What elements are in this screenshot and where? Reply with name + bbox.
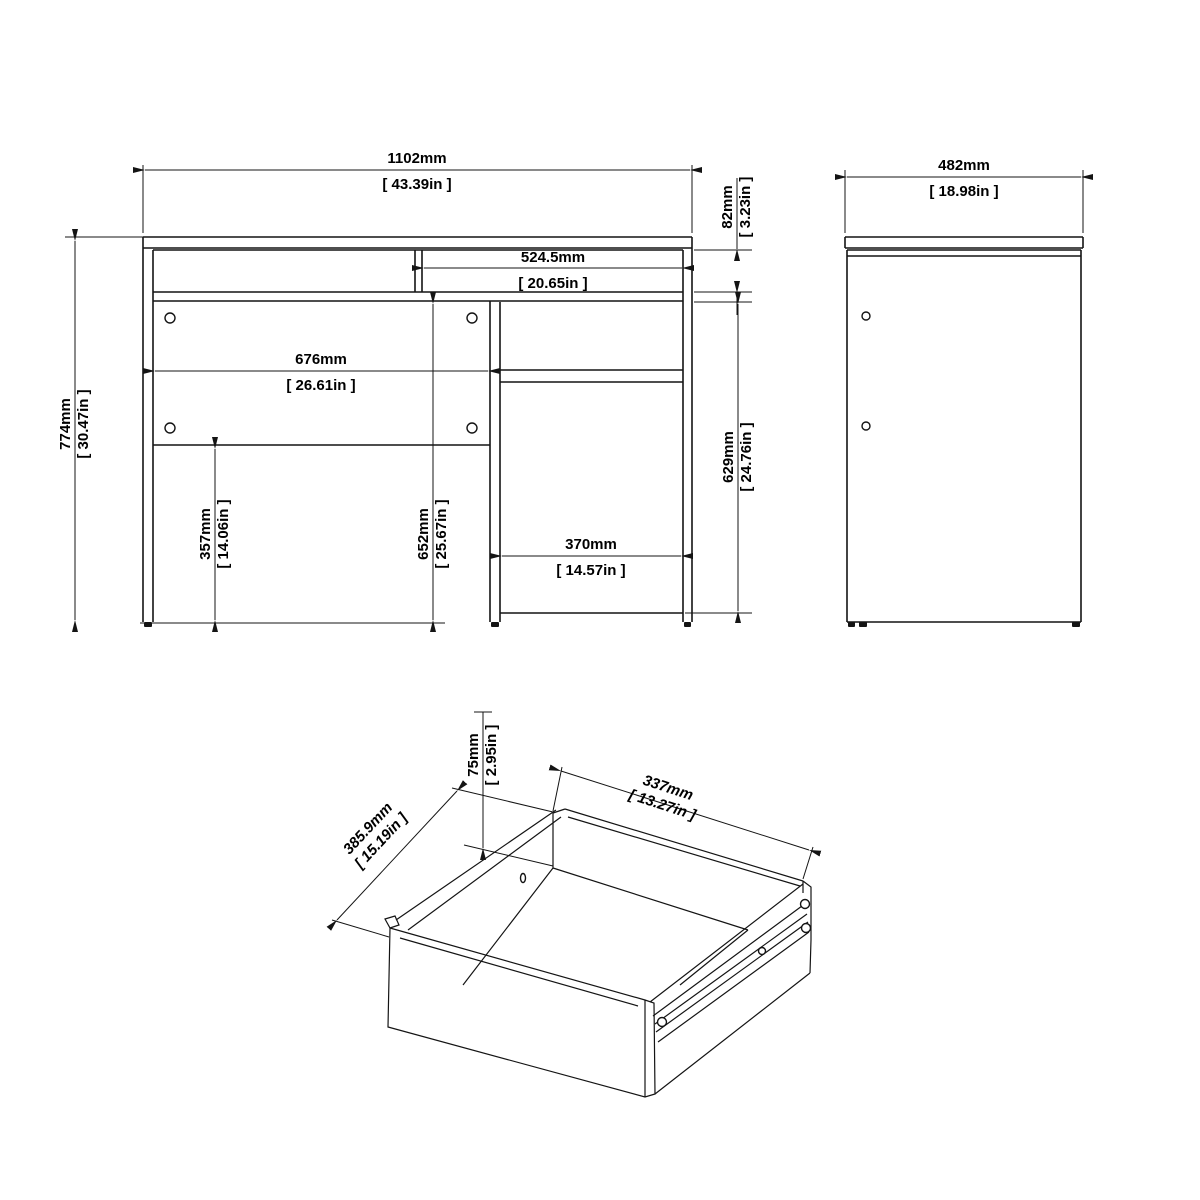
dim-leg-clearance-in: [ 14.06in ] [215,499,232,568]
dim-side-depth-mm: 482mm [938,157,990,174]
dim-overall-height-in: [ 30.47in ] [75,389,92,458]
screw-hole [862,312,870,320]
dim-overall-width-mm: 1102mm [387,150,446,167]
dim-drawer-depth: 385.9mm [ 15.19in ] [332,791,457,937]
dim-drawer-height-mm: 75mm [465,733,482,776]
drawer-front-panel-tab [385,916,399,928]
dim-door-width-mm: 370mm [565,536,617,553]
drawer-right-wall-rail [650,884,811,1094]
wall-hole [521,874,526,883]
screw-hole [862,422,870,430]
rail-hole [759,948,766,955]
dim-drawer-height: 75mm [ 2.95in ] [452,712,553,866]
dim-door-width: 370mm [ 14.57in ] [502,536,681,579]
rail-screw [801,900,810,909]
dim-cabinet-height: 629mm [ 24.76in ] [685,302,755,613]
dim-drawer-height-in: [ 2.95in ] [483,725,500,786]
dim-drawer-width: 337mm [ 13.27in ] [553,767,813,879]
dim-overall-height: 774mm [ 30.47in ] [57,241,92,620]
screw-hole [467,423,477,433]
dim-cabinet-height-mm: 629mm [720,431,737,483]
dim-back-panel-mm: 676mm [295,351,347,368]
dim-under-top-mm: 652mm [415,508,432,560]
drawer-left-wall [396,810,561,985]
side-view: 482mm [ 18.98in ] [845,157,1083,627]
dim-under-top-in: [ 25.67in ] [433,499,450,568]
foot [1072,622,1080,627]
dim-top-section: 82mm [ 3.23in ] [694,177,754,315]
furniture-assembly-diagram: 1102mm [ 43.39in ] 524.5mm [ 20.65in ] 8… [0,0,1200,1200]
rail-screw [802,924,811,933]
screw-hole [165,313,175,323]
drawer-back-wall [553,809,811,940]
ground-line [65,237,445,623]
foot [848,622,855,627]
dim-cabinet-height-in: [ 24.76in ] [738,422,755,491]
dim-top-section-mm: 82mm [719,185,736,228]
dim-under-top: 652mm [ 25.67in ] [415,304,450,620]
dim-shelf-opening-in: [ 20.65in ] [518,275,587,292]
drawer-front-panel [388,928,655,1097]
dim-leg-clearance: 357mm [ 14.06in ] [197,449,232,620]
front-view: 1102mm [ 43.39in ] 524.5mm [ 20.65in ] 8… [57,150,755,627]
screw-hole [467,313,477,323]
dim-back-panel-in: [ 26.61in ] [286,377,355,394]
dim-overall-height-mm: 774mm [57,398,74,450]
foot [859,622,867,627]
foot [684,622,691,627]
dim-shelf-opening-mm: 524.5mm [521,249,585,266]
dim-shelf-opening: 524.5mm [ 20.65in ] [424,249,682,292]
side-outline [845,237,1083,622]
dim-overall-width: 1102mm [ 43.39in ] [143,150,692,233]
dim-overall-width-in: [ 43.39in ] [382,176,451,193]
dim-leg-clearance-mm: 357mm [197,508,214,560]
rail-screw [658,1018,667,1027]
dim-side-depth: 482mm [ 18.98in ] [845,157,1083,233]
foot [491,622,499,627]
dim-side-depth-in: [ 18.98in ] [929,183,998,200]
drawer-view: 75mm [ 2.95in ] 337mm [ 13.27in ] 385.9m… [332,712,813,1097]
dim-door-width-in: [ 14.57in ] [556,562,625,579]
dim-top-section-in: [ 3.23in ] [737,177,754,238]
drawer-front-panel-inner-edge [400,938,638,1006]
dim-back-panel: 676mm [ 26.61in ] [155,351,488,394]
screw-hole [165,423,175,433]
